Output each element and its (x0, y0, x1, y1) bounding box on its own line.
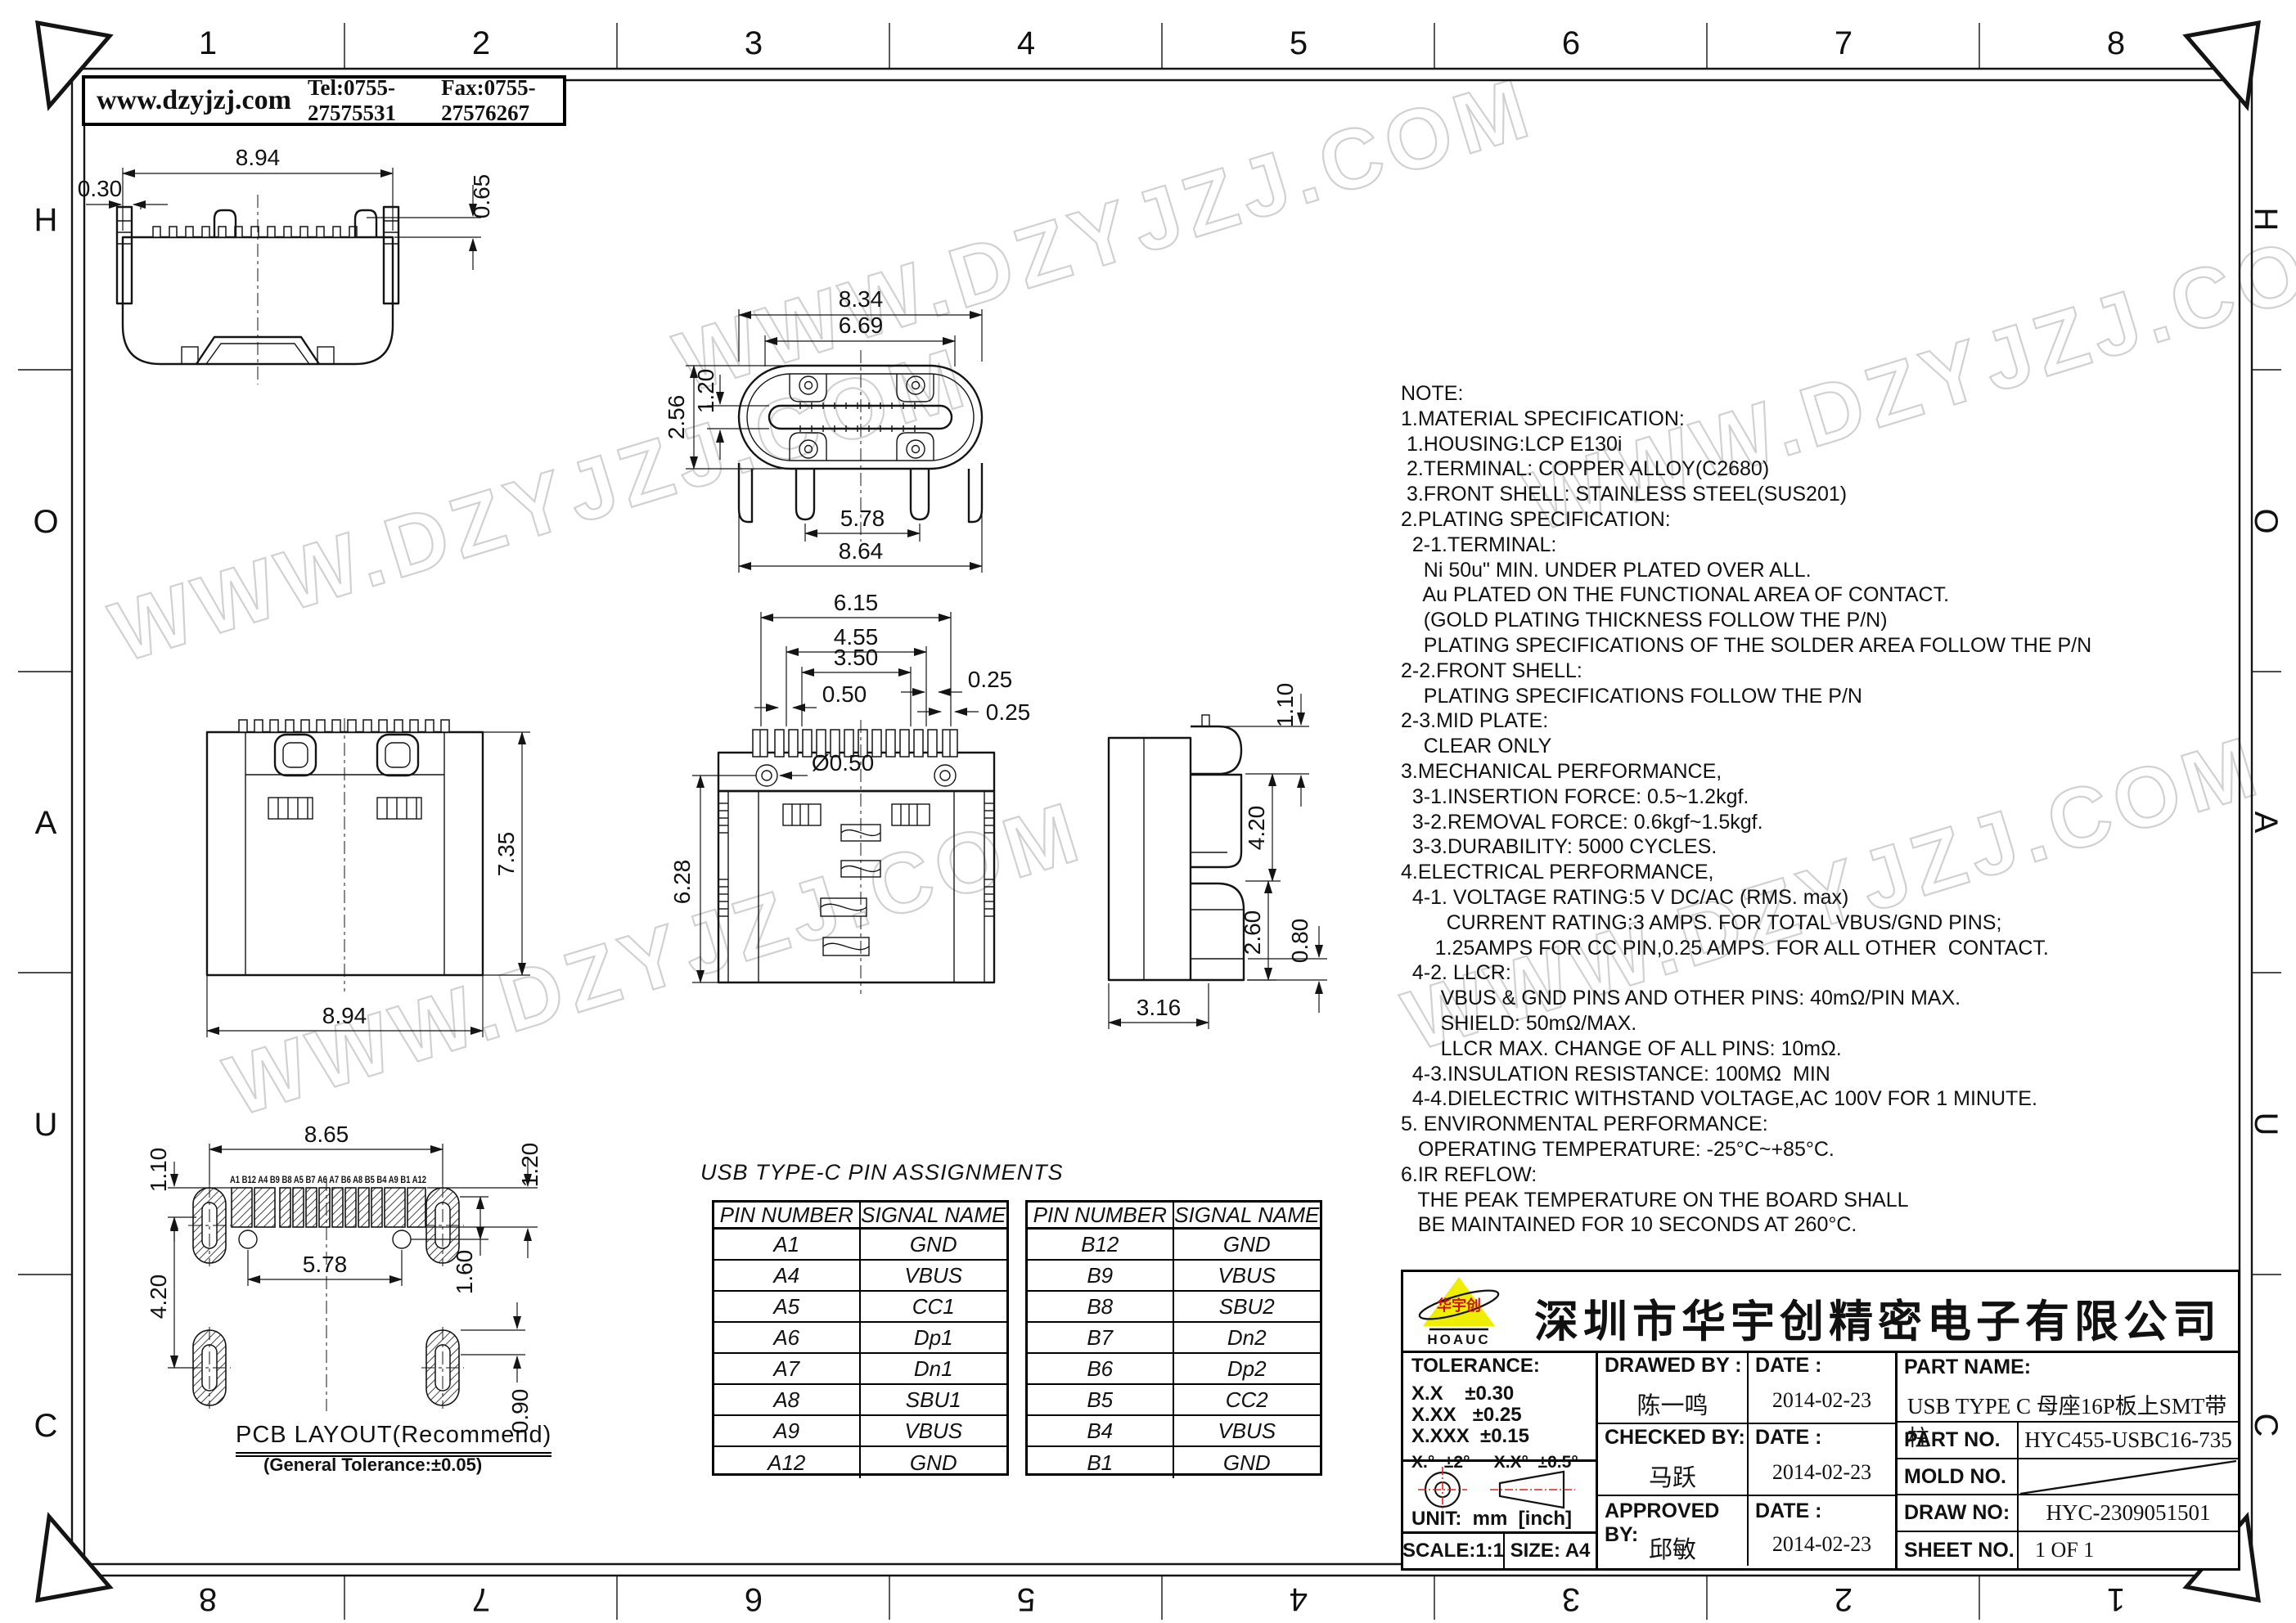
dim-label: 1.60 (452, 1250, 477, 1295)
pin-cell: A4 (714, 1261, 861, 1292)
scale-row: SCALE:1:1 SIZE: A4 (1403, 1534, 1596, 1568)
dim-label: 1.20 (693, 369, 718, 414)
tolerance-line: X.XXX ±0.15 (1411, 1426, 1596, 1447)
logo-text: HOAUC (1427, 1332, 1490, 1347)
mold-no-label: MOLD NO. (1898, 1459, 2019, 1494)
pin-cell: B9 (1028, 1261, 1174, 1292)
signal-cell: GND (861, 1447, 1007, 1478)
zone-col: 3 (745, 25, 763, 61)
dim-label: 0.80 (1287, 919, 1312, 964)
header-banner: www.dzyjzj.com Tel:0755-27575531 Fax:075… (82, 75, 566, 126)
pin-table-b: PIN NUMBER SIGNAL NAME B12GND B9VBUS B8S… (1025, 1200, 1322, 1476)
dim-label: 8.65 (304, 1122, 349, 1147)
dim-label: 2.60 (1240, 910, 1265, 955)
drawn-by-value: 陈一鸣 (1598, 1387, 1747, 1421)
sheet-no-label: SHEET NO. (1898, 1532, 2019, 1568)
pcb-layout-subtitle: (General Tolerance:±0.05) (263, 1454, 482, 1476)
signal-cell: VBUS (1174, 1261, 1321, 1292)
signal-cell: GND (1174, 1230, 1321, 1261)
view-side: 1.10 4.20 2.60 0.80 3.16 (1109, 683, 1327, 1029)
dim-label: 8.64 (839, 538, 884, 564)
dim-label: 8.34 (839, 286, 884, 312)
zone-col: 6 (1562, 25, 1580, 61)
pin-table-title: USB TYPE-C PIN ASSIGNMENTS (700, 1160, 1064, 1185)
tolerance-column: TOLERANCE: X.X ±0.30 X.XX ±0.25 X.XXX ±0… (1403, 1351, 1598, 1568)
zone-row: A (2248, 811, 2284, 834)
zone-row: A (35, 805, 57, 841)
pcb-layout-title: PCB LAYOUT(Recommend) (236, 1422, 551, 1457)
scale-text: SCALE:1:1 (1403, 1534, 1505, 1568)
pin-cell: B6 (1028, 1354, 1174, 1385)
dim-label: 8.94 (322, 1003, 367, 1028)
zone-row: H (2248, 208, 2284, 232)
signal-cell: VBUS (1174, 1416, 1321, 1447)
tolerance-box: TOLERANCE: X.X ±0.30 X.XX ±0.25 X.XXX ±0… (1403, 1351, 1596, 1462)
smt-pads (232, 1188, 425, 1227)
checked-by-value: 马跃 (1598, 1459, 1747, 1493)
dim-label: Ø0.50 (812, 750, 874, 776)
dim-label: 0.25 (968, 667, 1013, 692)
dim-label: 5.78 (303, 1252, 348, 1277)
signal-cell: VBUS (861, 1416, 1007, 1447)
title-block: 华宇创 HOAUC 深圳市华宇创精密电子有限公司 TOLERANCE: X.X … (1401, 1270, 2240, 1571)
notes-block: NOTE: 1.MATERIAL SPECIFICATION: 1.HOUSIN… (1401, 381, 2091, 1238)
zone-row: C (2248, 1414, 2284, 1437)
zone-row: C (34, 1408, 58, 1444)
checked-by-label: CHECKED BY: (1605, 1426, 1745, 1450)
pin-table-a: PIN NUMBER SIGNAL NAME A1GND A4VBUS A5CC… (712, 1200, 1009, 1476)
signal-cell: Dp1 (861, 1323, 1007, 1354)
dim-label: 3.50 (834, 645, 879, 670)
watermark-text: WWW.DZYJZJ.COM (665, 60, 1545, 411)
col-header: PIN NUMBER (714, 1203, 861, 1230)
watermark-text: WWW.DZYJZJ.COM (215, 784, 1095, 1135)
dim-label: 1.10 (146, 1148, 171, 1193)
signal-cell: Dn1 (861, 1354, 1007, 1385)
pin-cell: B12 (1028, 1230, 1174, 1261)
projection-box: UNIT: mm [inch] (1403, 1462, 1596, 1534)
unit-text: UNIT: mm [inch] (1411, 1508, 1572, 1531)
signal-cell: CC1 (861, 1292, 1007, 1323)
date-label: DATE : (1755, 1354, 1821, 1378)
pin-cell: A6 (714, 1323, 861, 1354)
zone-col: 1 (199, 25, 217, 61)
pin-cell: B8 (1028, 1292, 1174, 1323)
company-logo: 华宇创 HOAUC (1411, 1274, 1510, 1349)
pin-cell: A5 (714, 1292, 861, 1323)
pcb-layout: A1 B12 A4 B9 B8 A5 B7 A6 A7 B6 A8 B5 B4 … (146, 1122, 542, 1433)
zone-col-bottom: 5 (1017, 1581, 1035, 1617)
zone-row: O (2248, 508, 2284, 533)
dim-label: 0.25 (986, 699, 1031, 725)
dim-label: 4.20 (1244, 806, 1269, 851)
pin-cell: B4 (1028, 1416, 1174, 1447)
col-header: SIGNAL NAME (1174, 1203, 1321, 1230)
zone-row: U (2248, 1113, 2284, 1136)
dim-label: 1.10 (1272, 683, 1298, 728)
zone-col: 7 (1835, 25, 1853, 61)
rear-pins (153, 227, 357, 237)
side-dims: 1.10 4.20 2.60 0.80 3.16 (1109, 683, 1327, 1029)
zone-row: O (33, 504, 58, 540)
pad-labels: A1 B12 A4 B9 B8 A5 B7 A6 A7 B6 A8 B5 B4 … (230, 1174, 426, 1185)
dim-label: 2.56 (664, 395, 689, 440)
zone-col-bottom: 3 (1562, 1581, 1580, 1617)
fax-text: Fax:0755-27576267 (441, 75, 563, 126)
pin-cell: A12 (714, 1447, 861, 1478)
zone-col-bottom: 7 (472, 1581, 490, 1617)
signal-cell: Dp2 (1174, 1354, 1321, 1385)
dim-label: 8.94 (236, 145, 281, 170)
drawing-sheet: WWW.DZYJZJ.COM WWW.DZYJZJ.COM WWW.DZYJZJ… (0, 0, 2296, 1623)
dim-label: 7.35 (493, 832, 519, 877)
signal-cell: VBUS (861, 1261, 1007, 1292)
part-name-label: PART NAME: (1904, 1355, 2031, 1379)
dim-label: 4.20 (146, 1275, 171, 1320)
mold-no-value (2019, 1459, 2238, 1494)
sheet-no-value: 1 OF 1 (2019, 1532, 2238, 1568)
zone-col-bottom: 2 (1835, 1581, 1853, 1617)
date-value: 2014-02-23 (1749, 1388, 1895, 1413)
zone-col: 2 (472, 25, 490, 61)
signal-cell: CC2 (1174, 1385, 1321, 1416)
draw-no-label: DRAW NO: (1898, 1495, 2019, 1531)
signal-cell: GND (861, 1230, 1007, 1261)
zone-col-bottom: 4 (1290, 1581, 1308, 1617)
pin-cell: A1 (714, 1230, 861, 1261)
zone-row: H (34, 202, 58, 238)
date-label: DATE : (1755, 1426, 1821, 1450)
dim-label: 0.65 (469, 174, 494, 219)
draw-no-value: HYC-2309051501 (2019, 1495, 2238, 1531)
website-text: www.dzyjzj.com (97, 85, 291, 116)
drawn-by-label: DRAWED BY : (1605, 1354, 1742, 1378)
signal-cell: Dn2 (1174, 1323, 1321, 1354)
company-name: 深圳市华宇创精密电子有限公司 (1526, 1285, 2230, 1350)
pin-cell: A8 (714, 1385, 861, 1416)
zone-col: 4 (1017, 25, 1035, 61)
col-header: SIGNAL NAME (861, 1203, 1007, 1230)
zone-col: 5 (1290, 25, 1308, 61)
view-rear: 8.94 0.30 0.65 (78, 145, 494, 384)
zone-col-bottom: 6 (745, 1581, 763, 1617)
zone-col-bottom: 1 (2107, 1581, 2125, 1617)
company-row: 华宇创 HOAUC 深圳市华宇创精密电子有限公司 (1403, 1272, 2238, 1353)
tolerance-title: TOLERANCE: (1411, 1355, 1596, 1377)
dim-label: 0.50 (822, 681, 867, 707)
zone-col: 8 (2107, 25, 2125, 61)
date-value: 2014-02-23 (1749, 1532, 1895, 1557)
part-no-value: HYC455-USBC16-735 (2019, 1423, 2238, 1458)
pin-cell: B5 (1028, 1385, 1174, 1416)
pin-cell: A9 (714, 1416, 861, 1447)
part-no-label: PART NO. (1898, 1423, 2019, 1458)
part-column: PART NAME: USB TYPE C 母座16P板上SMT带柱 PART … (1898, 1351, 2238, 1568)
signature-column: DRAWED BY : 陈一鸣 DATE : 2014-02-23 CHECKE… (1598, 1351, 1898, 1568)
dim-label: 5.78 (840, 506, 885, 531)
zone-row: U (34, 1107, 58, 1143)
zone-col-bottom: 8 (199, 1581, 217, 1617)
approved-by-value: 邱敏 (1598, 1531, 1747, 1565)
dim-label: 6.28 (669, 860, 695, 905)
dim-label: 6.15 (834, 590, 879, 615)
pin-cell: B1 (1028, 1447, 1174, 1478)
dim-label: 6.69 (839, 312, 884, 338)
signal-cell: GND (1174, 1447, 1321, 1478)
tolerance-line: X.X ±0.30 (1411, 1377, 1596, 1405)
dim-label: 3.16 (1137, 995, 1182, 1020)
tolerance-line: X.XX ±0.25 (1411, 1405, 1596, 1426)
size-text: SIZE: A4 (1505, 1534, 1596, 1568)
logo-cn-text: 华宇创 (1437, 1297, 1481, 1314)
latch-windows (783, 804, 930, 825)
dim-label: 0.30 (78, 176, 123, 201)
col-header: PIN NUMBER (1028, 1203, 1174, 1230)
signal-cell: SBU1 (861, 1385, 1007, 1416)
tel-text: Tel:0755-27575531 (308, 75, 425, 126)
signal-cell: SBU2 (1174, 1292, 1321, 1323)
date-value: 2014-02-23 (1749, 1460, 1895, 1485)
dim-label: 1.20 (517, 1143, 542, 1188)
pin-cell: B7 (1028, 1323, 1174, 1354)
pin-cell: A7 (714, 1354, 861, 1385)
rear-dims: 8.94 0.30 0.65 (78, 145, 494, 270)
date-label: DATE : (1755, 1499, 1821, 1523)
